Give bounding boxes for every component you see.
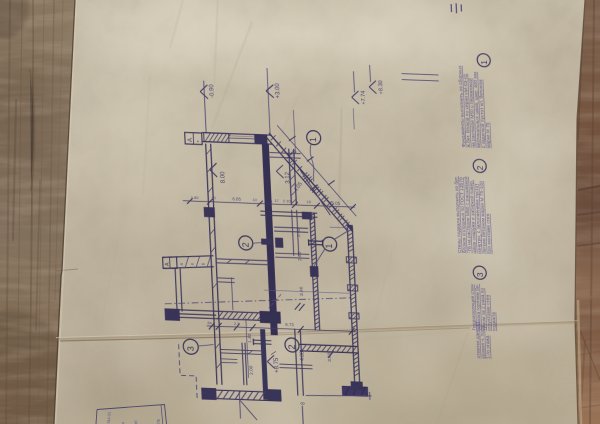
svg-text:3: 3 (186, 346, 196, 351)
svg-text:2: 2 (241, 242, 251, 247)
svg-text:A: A (188, 138, 194, 142)
svg-text:1: 1 (479, 60, 489, 65)
svg-text:2.00: 2.00 (297, 251, 303, 261)
svg-text:-0.90: -0.90 (209, 84, 216, 99)
svg-text:8: 8 (301, 402, 307, 405)
svg-text:+8.75: +8.75 (274, 357, 281, 373)
svg-text:6.85: 6.85 (232, 197, 241, 202)
svg-text:17: 17 (275, 199, 279, 203)
svg-text:10: 10 (253, 198, 257, 202)
svg-text:1: 1 (308, 137, 318, 142)
svg-text:ЛЕ: ЛЕ (156, 418, 161, 424)
svg-text:3: 3 (475, 272, 485, 277)
svg-text:3.12: 3.12 (285, 171, 292, 184)
svg-text:2.02: 2.02 (296, 227, 302, 237)
svg-text:+8.30: +8.30 (378, 80, 385, 94)
svg-text:марки М 75: марки М 75 (485, 122, 492, 148)
svg-text:90: 90 (212, 196, 216, 200)
svg-text:1.40: 1.40 (247, 333, 253, 343)
svg-text:2: 2 (475, 165, 485, 170)
svg-text:4.80: 4.80 (300, 351, 306, 361)
svg-text:1.80: 1.80 (191, 195, 200, 200)
svg-text:1-го этажа: 1-го этажа (485, 335, 492, 359)
svg-text:+7.74: +7.74 (360, 91, 367, 105)
svg-text:784-31: 784-31 (106, 412, 112, 424)
svg-text:1: 1 (324, 243, 334, 248)
svg-text:подвала: подвала (492, 312, 498, 331)
svg-text:2.10: 2.10 (283, 198, 292, 203)
svg-text:2.00: 2.00 (249, 365, 255, 375)
svg-text:5.05: 5.05 (331, 201, 340, 206)
svg-text:+3.00: +3.00 (275, 83, 282, 99)
svg-text:2.7: 2.7 (234, 322, 239, 326)
svg-text:15: 15 (307, 200, 311, 204)
svg-text:8.73: 8.73 (285, 322, 294, 327)
svg-text:8.00: 8.00 (220, 171, 227, 184)
svg-text:3.60: 3.60 (327, 352, 333, 362)
